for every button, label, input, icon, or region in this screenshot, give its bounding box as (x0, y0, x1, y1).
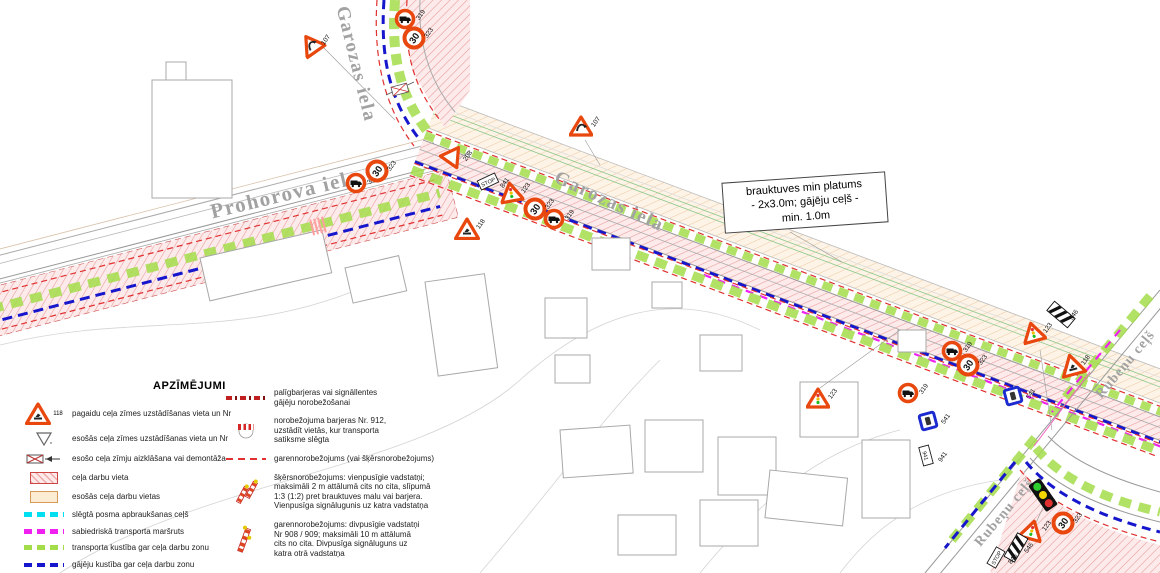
sign-number-label: 941 (937, 451, 949, 464)
traffic-sign-rect-sign-841: STOP (477, 172, 500, 190)
sign-number-label: 319 (918, 383, 930, 396)
traffic-management-plan: Prohorova iela Garozas iela Garozas iela… (0, 0, 1160, 573)
traffic-sign-blue-square-541 (1002, 385, 1024, 407)
traffic-sign-circle-truck-319 (543, 208, 565, 230)
traffic-sign-tri-signal-123 (497, 179, 524, 205)
traffic-sign-tri-signal-123 (1019, 318, 1048, 345)
sign-number-label: 541 (1025, 388, 1037, 401)
traffic-sign-rect-sign-941: 941 (918, 444, 934, 466)
traffic-sign-tri-signal-123 (806, 387, 830, 409)
traffic-sign-rect-sign-846: STOP (986, 546, 1006, 569)
traffic-sign-circle-truck-319 (897, 382, 919, 404)
traffic-sign-circle-30-323: 30 (1046, 506, 1079, 539)
traffic-sign-traffic-light (1027, 476, 1060, 513)
sign-number-label: 319 (564, 209, 576, 222)
traffic-sign-tri-works-118 (454, 217, 480, 240)
sign-number-label: 319 (415, 9, 427, 22)
traffic-signs-layer: 3193032310731930323208STOP84112311830323… (0, 0, 1160, 573)
traffic-sign-tri-curve-107 (569, 115, 593, 137)
sign-number-label: 541 (940, 413, 952, 426)
traffic-sign-blue-square-541 (917, 410, 939, 432)
